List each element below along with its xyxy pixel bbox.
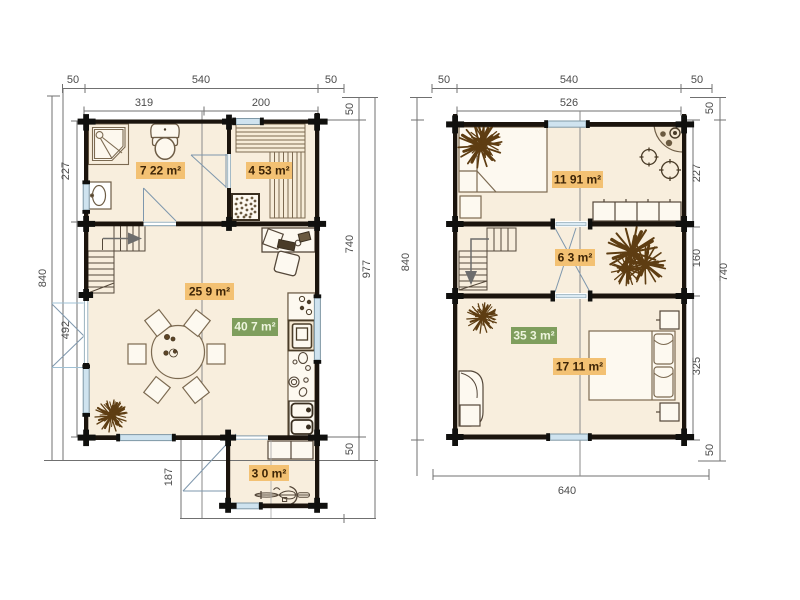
svg-text:227: 227 [691,164,703,182]
svg-text:50: 50 [704,444,716,456]
svg-text:50: 50 [67,74,79,86]
svg-text:540: 540 [560,74,578,86]
svg-text:740: 740 [718,263,730,281]
svg-text:4 53 m²: 4 53 m² [248,164,289,178]
svg-text:40 7 m²: 40 7 m² [234,320,275,334]
svg-text:50: 50 [691,74,703,86]
svg-text:325: 325 [691,357,703,375]
svg-text:492: 492 [60,321,72,339]
svg-text:540: 540 [192,74,210,86]
svg-text:319: 319 [135,97,153,109]
svg-text:50: 50 [325,74,337,86]
svg-text:50: 50 [344,443,356,455]
svg-text:840: 840 [400,253,412,271]
svg-text:17 11 m²: 17 11 m² [556,360,603,374]
svg-text:200: 200 [252,97,270,109]
svg-text:50: 50 [704,102,716,114]
svg-text:160: 160 [691,249,703,267]
svg-text:227: 227 [60,162,72,180]
svg-text:50: 50 [344,103,356,115]
svg-text:187: 187 [163,468,175,486]
svg-text:7 22 m²: 7 22 m² [140,164,181,178]
svg-text:3 0 m²: 3 0 m² [252,467,287,481]
svg-text:35 3 m²: 35 3 m² [513,329,554,343]
svg-text:640: 640 [558,485,576,497]
svg-text:740: 740 [344,235,356,253]
svg-text:840: 840 [37,269,49,287]
svg-text:11 91 m²: 11 91 m² [554,173,601,187]
svg-text:25 9 m²: 25 9 m² [189,285,230,299]
svg-text:6 3 m²: 6 3 m² [558,251,593,265]
svg-text:526: 526 [560,97,578,109]
svg-text:977: 977 [361,260,373,278]
svg-text:50: 50 [438,74,450,86]
